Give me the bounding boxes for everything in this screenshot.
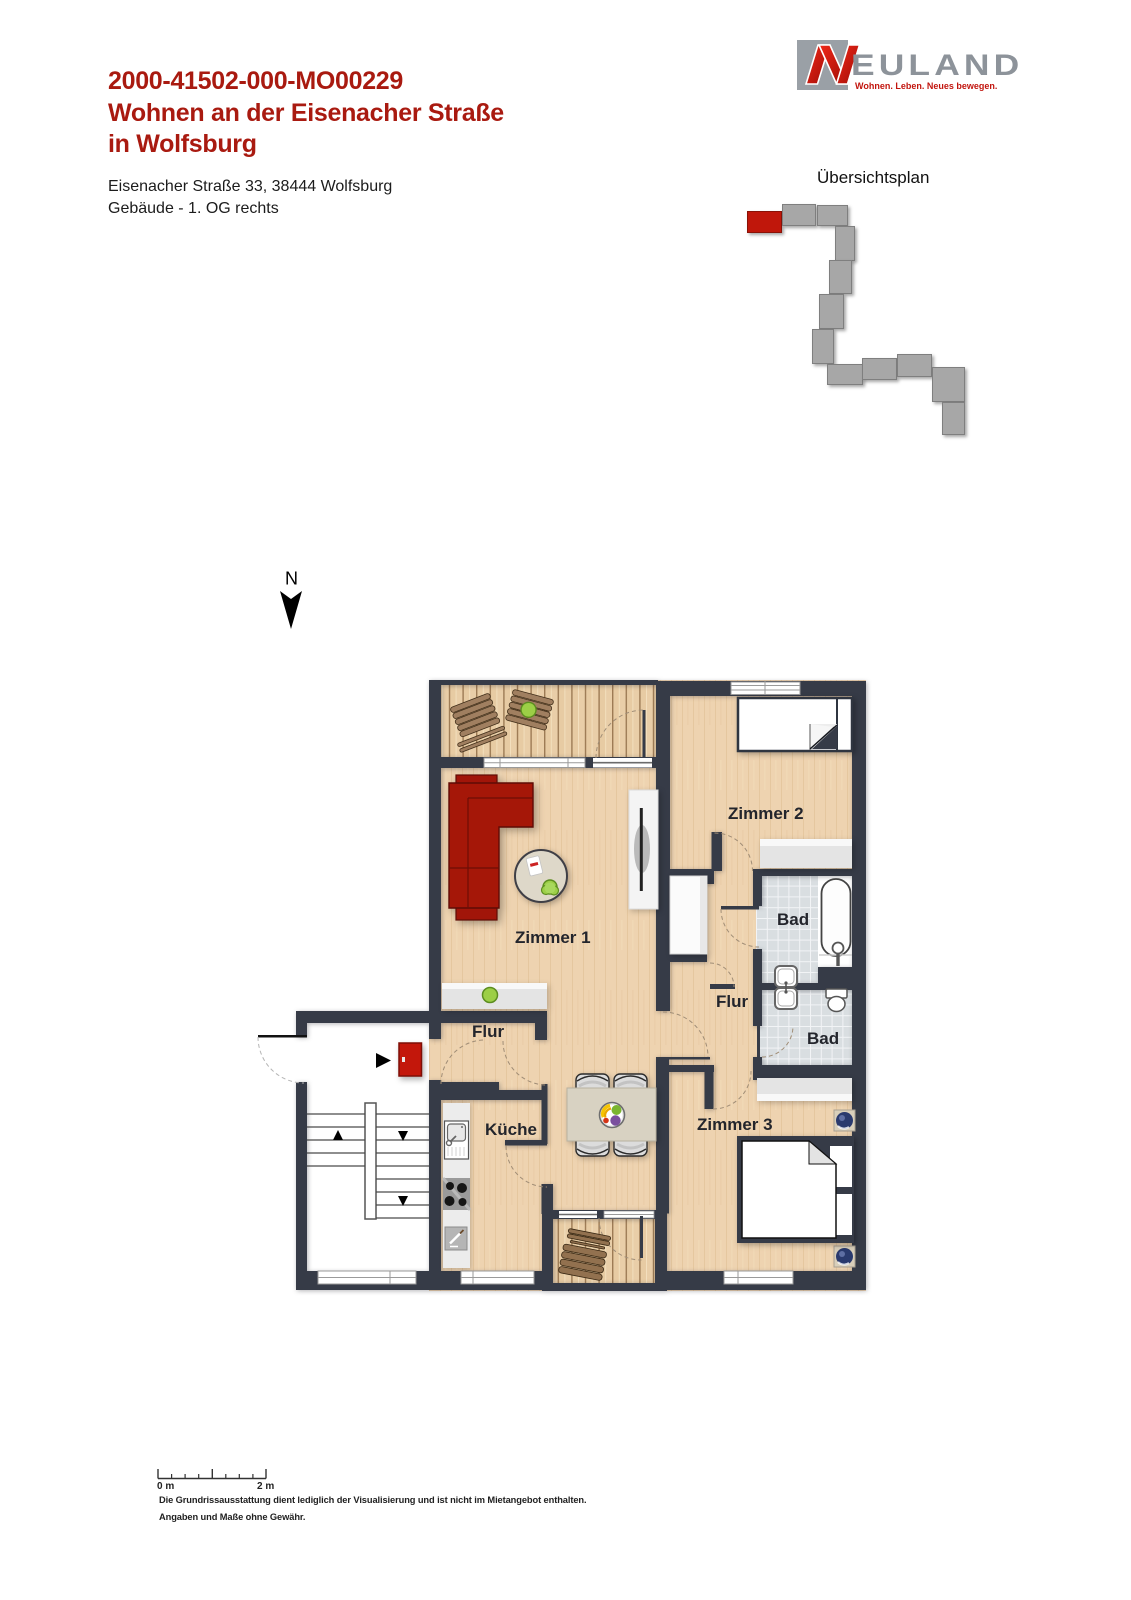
svg-text:Zimmer 2: Zimmer 2: [728, 804, 804, 823]
svg-text:Küche: Küche: [485, 1120, 537, 1139]
svg-text:Flur: Flur: [716, 992, 748, 1011]
svg-text:Flur: Flur: [472, 1022, 504, 1041]
svg-text:Bad: Bad: [777, 910, 809, 929]
svg-text:Zimmer 3: Zimmer 3: [697, 1115, 773, 1134]
svg-text:Zimmer 1: Zimmer 1: [515, 928, 591, 947]
svg-text:Bad: Bad: [807, 1029, 839, 1048]
